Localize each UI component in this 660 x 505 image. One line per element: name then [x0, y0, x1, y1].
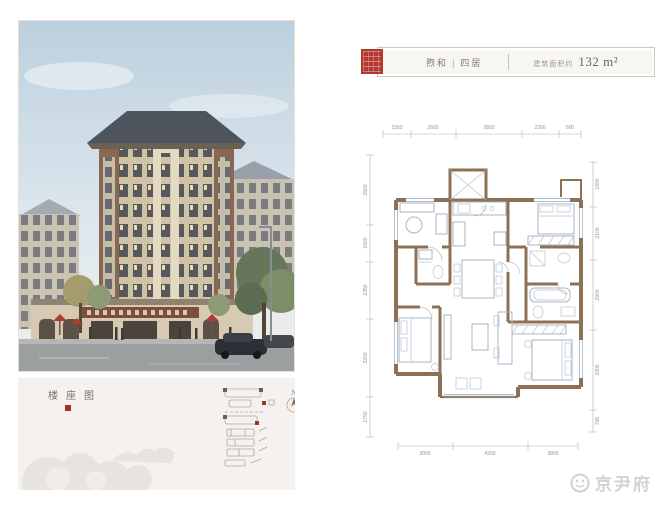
watermark-logo-icon — [569, 472, 591, 494]
building-photo — [18, 20, 295, 372]
watermark-text: 京尹府 — [595, 470, 652, 495]
unit-name: 煦和 — [426, 58, 448, 68]
svg-text:1750: 1750 — [363, 411, 369, 422]
svg-text:2900: 2900 — [595, 289, 601, 300]
watermark: 京尹府 — [569, 470, 652, 495]
unit-type: 四居 — [460, 58, 482, 68]
svg-text:2100: 2100 — [595, 227, 601, 238]
building-rendering-image — [19, 21, 294, 371]
svg-text:2900: 2900 — [363, 184, 369, 195]
page: 楼座图 — [0, 0, 660, 505]
svg-text:1500: 1500 — [363, 237, 369, 248]
svg-text:2600: 2600 — [427, 125, 438, 131]
svg-text:3800: 3800 — [547, 451, 558, 457]
header-divider — [508, 54, 509, 70]
svg-text:3300: 3300 — [595, 364, 601, 375]
svg-text:600: 600 — [566, 125, 575, 131]
dimension-top: 1550 2600 3800 2200 600 — [383, 125, 581, 138]
svg-text:2200: 2200 — [534, 125, 545, 131]
unit-separator: | — [452, 58, 456, 68]
site-panel-title: 楼座图 — [48, 387, 102, 402]
site-location-panel: 楼座图 — [18, 378, 295, 490]
site-plan-sketch: N — [221, 383, 295, 471]
compass-label: N — [291, 389, 295, 397]
dimension-left: 2900 1500 2350 3200 1750 — [363, 155, 374, 437]
svg-text:3200: 3200 — [363, 352, 369, 363]
unit-header-bar: 煦和 | 四居 建筑面积约 132 m² — [377, 47, 655, 77]
north-compass: N — [287, 389, 295, 412]
wardrobe-hatch-2 — [512, 325, 566, 334]
svg-text:3000: 3000 — [419, 451, 430, 457]
floor-plan-drawing: 1550 2600 3800 2200 600 2900 1500 2350 3… — [358, 112, 660, 464]
red-seal-stamp — [361, 49, 383, 74]
svg-text:1550: 1550 — [391, 125, 402, 131]
svg-text:2350: 2350 — [363, 284, 369, 295]
main-tower — [87, 111, 246, 306]
cloud-ornament — [18, 421, 208, 490]
building-location-marker — [65, 405, 71, 411]
floor-plan: 1550 2600 3800 2200 600 2900 1500 2350 3… — [358, 112, 660, 464]
unit-title: 煦和 | 四居 — [426, 56, 482, 69]
area-group: 建筑面积约 132 m² — [533, 54, 618, 70]
wardrobe-hatch-1 — [528, 236, 574, 245]
svg-text:4200: 4200 — [484, 451, 495, 457]
area-value: 132 m² — [578, 54, 618, 70]
dimension-right: 1800 2100 2900 3300 700 — [589, 162, 601, 432]
furniture — [399, 202, 575, 389]
svg-text:1800: 1800 — [595, 178, 601, 189]
svg-text:700: 700 — [595, 417, 601, 426]
area-label: 建筑面积约 — [533, 59, 573, 69]
dimension-bottom: 3000 4200 3800 — [398, 442, 578, 457]
svg-text:3800: 3800 — [483, 125, 494, 131]
